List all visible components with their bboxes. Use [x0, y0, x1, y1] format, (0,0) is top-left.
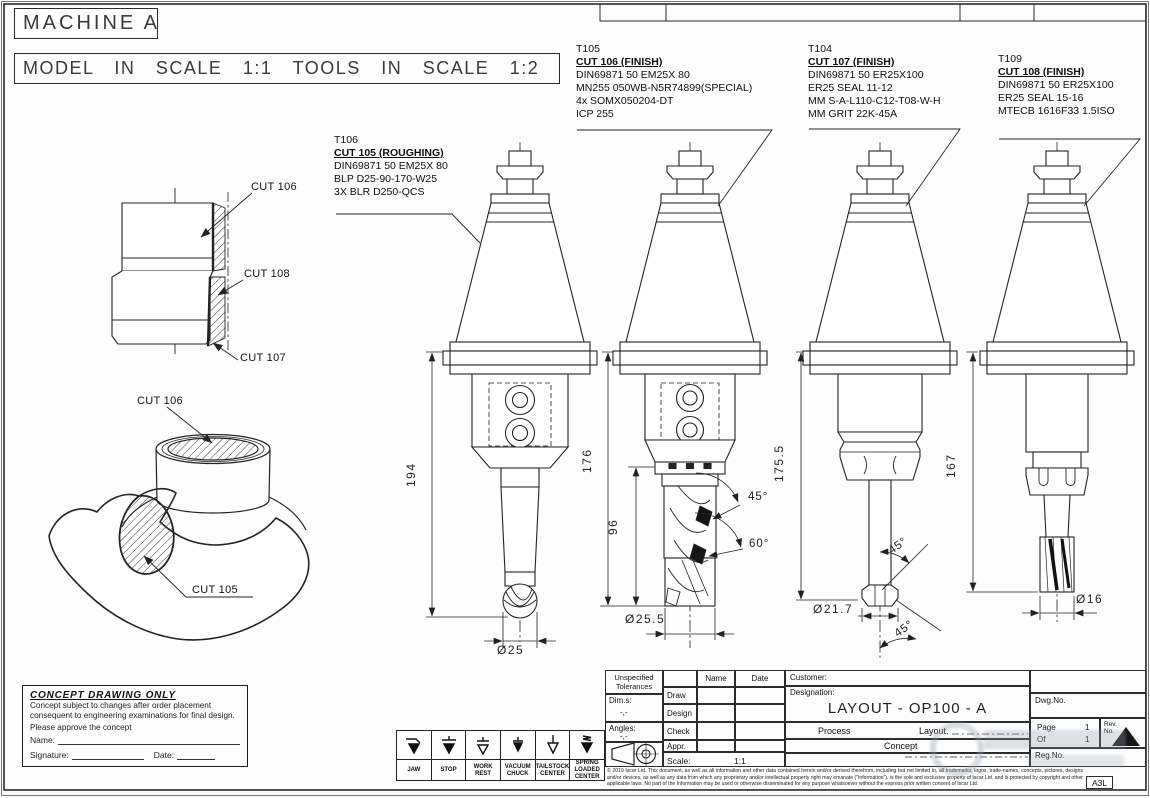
tool-spec: MN255 050WB-N5R74899(SPECIAL)	[576, 82, 752, 95]
tolerances-cell: Unspecified Tolerances	[605, 670, 663, 694]
tool-spec: MM S-A-L110-C12-T08-W-H	[808, 95, 941, 108]
draw-row-label: Draw	[663, 687, 697, 704]
concept-box-body3: Please approve the concept	[30, 723, 240, 733]
dim-dia-t4: Ø16	[1076, 592, 1103, 606]
fixture-label-stop: STOP	[432, 760, 467, 781]
customer-label: Customer:	[790, 673, 827, 682]
drawing-sheet: { "header": { "machine": "MACHINE A", "s…	[0, 0, 1150, 798]
concept-box-body2: consequent to engineering examinations f…	[30, 711, 240, 721]
fixture-label-work-rest: WORK REST	[466, 760, 501, 781]
design-date-cell	[735, 704, 785, 722]
design-name-cell	[697, 704, 735, 722]
tool-id: T105	[576, 43, 752, 56]
scale-note-box: MODEL IN SCALE 1:1 TOOLS IN SCALE 1:2	[14, 53, 560, 84]
fixture-symbols-table: JAW STOP WORK REST VACUUM CHUCK TAILSTOC…	[396, 730, 605, 781]
section-view	[112, 188, 228, 354]
page-label: Page	[1037, 723, 1056, 732]
tool-id: T109	[998, 53, 1115, 66]
machine-title-box: MACHINE A	[14, 8, 158, 39]
designation-label: Designation:	[790, 688, 834, 697]
vacuum-chuck-symbol-icon	[501, 731, 536, 759]
tool-spec: BLP D25-90-170-W25	[334, 173, 448, 186]
dim-length-t2: 176	[581, 448, 594, 473]
cut-label-section-mid: CUT 108	[244, 268, 290, 280]
date-header-cell: Date	[735, 670, 785, 687]
tool-spec: MTECB 1616F33 1.5ISO	[998, 105, 1115, 118]
dwg-blank-cell	[1030, 670, 1146, 693]
name-label: Name:	[30, 735, 55, 745]
rev-no-label: No.	[1104, 728, 1114, 735]
dims-tolerance-cell: Dim.s: -,-	[605, 694, 663, 722]
appr-name-cell	[697, 740, 735, 752]
tool-cut: CUT 107 (FINISH)	[808, 56, 941, 69]
angle2-t2: 60°	[749, 538, 769, 550]
dim-dia-t2: Ø25.5	[625, 612, 665, 626]
tailstock-center-symbol-icon	[536, 731, 571, 759]
dim-flute-t2: 96	[607, 519, 620, 535]
tool-note-t109: T109 CUT 108 (FINISH) DIN69871 50 ER25X1…	[998, 53, 1115, 118]
spring-loaded-center-symbol-icon	[570, 731, 604, 759]
tool-spec: DIN69871 50 ER25X100	[808, 69, 941, 82]
tool-drawings	[443, 142, 1134, 658]
concept-cell: Concept	[785, 739, 1030, 753]
design-row-label: Design	[663, 704, 697, 722]
concept-drawing-box: CONCEPT DRAWING ONLY Concept subject to …	[22, 685, 248, 767]
tool-cut: CUT 108 (FINISH)	[998, 66, 1115, 79]
dwg-no-cell: Dwg.No.	[1030, 693, 1146, 718]
tool-note-t105: T105 CUT 106 (FINISH) DIN69871 50 EM25X …	[576, 43, 752, 121]
tool-spec: DIN69871 50 EM25X 80	[576, 69, 752, 82]
check-date-cell	[735, 722, 785, 740]
revision-strip	[600, 4, 1146, 21]
fixture-label-vacuum-chuck: VACUUM CHUCK	[501, 760, 536, 781]
scale-value: 1:1	[734, 756, 746, 766]
signoff-corner-cell	[663, 670, 697, 687]
process-layout-cell: Process Layout.	[785, 722, 1030, 739]
concept-label: Concept	[884, 741, 918, 751]
fixture-label-jaw: JAW	[397, 760, 432, 781]
tool-note-t106: T106 CUT 105 (ROUGHING) DIN69871 50 EM25…	[334, 134, 448, 199]
process-label: Process	[818, 726, 851, 736]
tool-spec: 4x SOMX050204-DT	[576, 95, 752, 108]
machine-title: MACHINE A	[23, 12, 160, 34]
customer-cell: Customer:	[785, 670, 1030, 686]
tool-cut: CUT 105 (ROUGHING)	[334, 147, 448, 160]
jaw-symbol-icon	[397, 731, 432, 759]
draw-name-cell	[697, 687, 735, 704]
stop-symbol-icon	[432, 731, 467, 759]
scale-label: Scale:	[667, 756, 691, 766]
appr-row-label: Appr.	[663, 740, 697, 752]
signature-line	[72, 750, 144, 760]
designation-cell: Designation: LAYOUT - OP100 - A	[785, 686, 1030, 722]
tool-spec: DIN69871 50 EM25X 80	[334, 160, 448, 173]
tool-spec: MM GRIT 22K-45A	[808, 108, 941, 121]
tool-spec: DIN69871 50 ER25X100	[998, 79, 1115, 92]
empty-process-cell	[785, 753, 1030, 767]
reg-no-cell: Reg.No.	[1030, 748, 1146, 767]
date-label: Date:	[154, 750, 174, 760]
dims-value: -,-	[620, 708, 628, 717]
dims-label: Dim.s:	[609, 696, 632, 705]
designation-value: LAYOUT - OP100 - A	[786, 700, 1029, 717]
check-name-cell	[697, 722, 735, 740]
rev-label: Rev.	[1104, 721, 1117, 728]
angles-value: -,-	[620, 732, 628, 741]
tool-id: T104	[808, 43, 941, 56]
page-cell: Page 1 Of 1	[1030, 718, 1100, 748]
dwg-no-label: Dwg.No.	[1035, 696, 1066, 705]
name-header-cell: Name	[697, 670, 735, 687]
draw-date-cell	[735, 687, 785, 704]
page-value: 1	[1085, 723, 1089, 732]
angle1-t2: 45°	[748, 491, 768, 503]
layout-label: Layout.	[919, 726, 949, 736]
dim-dia-t3: Ø21.7	[813, 602, 853, 616]
reg-no-label: Reg.No.	[1035, 751, 1064, 760]
note-leaders	[336, 129, 1140, 243]
of-label: Of	[1037, 735, 1045, 744]
legal-fine-print: © 2019 Iscar Ltd. This document, as well…	[607, 768, 1083, 788]
signature-label: Signature:	[30, 750, 69, 760]
name-line	[58, 735, 240, 745]
sheet-format-badge: A3L	[1086, 776, 1113, 789]
cut-label-iso-pocket: CUT 105	[192, 584, 238, 596]
dim-dia-t1: Ø25	[497, 643, 524, 657]
rev-cell: Rev. No.	[1100, 718, 1146, 748]
angles-tolerance-cell: Angles: -,-	[605, 722, 663, 742]
appr-date-cell	[735, 740, 785, 752]
tool-spec: 3X BLR D250-QCS	[334, 186, 448, 199]
concept-box-body1: Concept subject to changes after order p…	[30, 701, 240, 711]
tool-spec: ER25 SEAL 11-12	[808, 82, 941, 95]
scale-cell: Scale: 1:1	[663, 752, 785, 767]
cut-label-section-top: CUT 106	[251, 181, 297, 193]
tool-id: T106	[334, 134, 448, 147]
fixture-label-spring-loaded-center: SPRING LOADED CENTER	[570, 760, 604, 781]
tool-spec: ER25 SEAL 15-16	[998, 92, 1115, 105]
fixture-label-tailstock-center: TAILSTOCK CENTER	[536, 760, 571, 781]
work-rest-symbol-icon	[466, 731, 501, 759]
dim-length-t4: 167	[945, 453, 958, 478]
scale-note: MODEL IN SCALE 1:1 TOOLS IN SCALE 1:2	[23, 58, 539, 78]
projection-symbol-cell	[605, 742, 663, 767]
tool-cut: CUT 106 (FINISH)	[576, 56, 752, 69]
of-value: 1	[1085, 735, 1089, 744]
cut-label-section-bot: CUT 107	[240, 352, 286, 364]
date-line	[177, 750, 215, 760]
tool-note-t104: T104 CUT 107 (FINISH) DIN69871 50 ER25X1…	[808, 43, 941, 121]
iso-view	[49, 435, 309, 640]
dim-length-t3: 175.5	[773, 444, 786, 482]
check-row-label: Check	[663, 722, 697, 740]
concept-box-title: CONCEPT DRAWING ONLY	[30, 690, 240, 701]
cut-label-iso-top: CUT 106	[137, 395, 183, 407]
tool-spec: ICP 255	[576, 108, 752, 121]
dim-length-t1: 194	[405, 462, 418, 487]
